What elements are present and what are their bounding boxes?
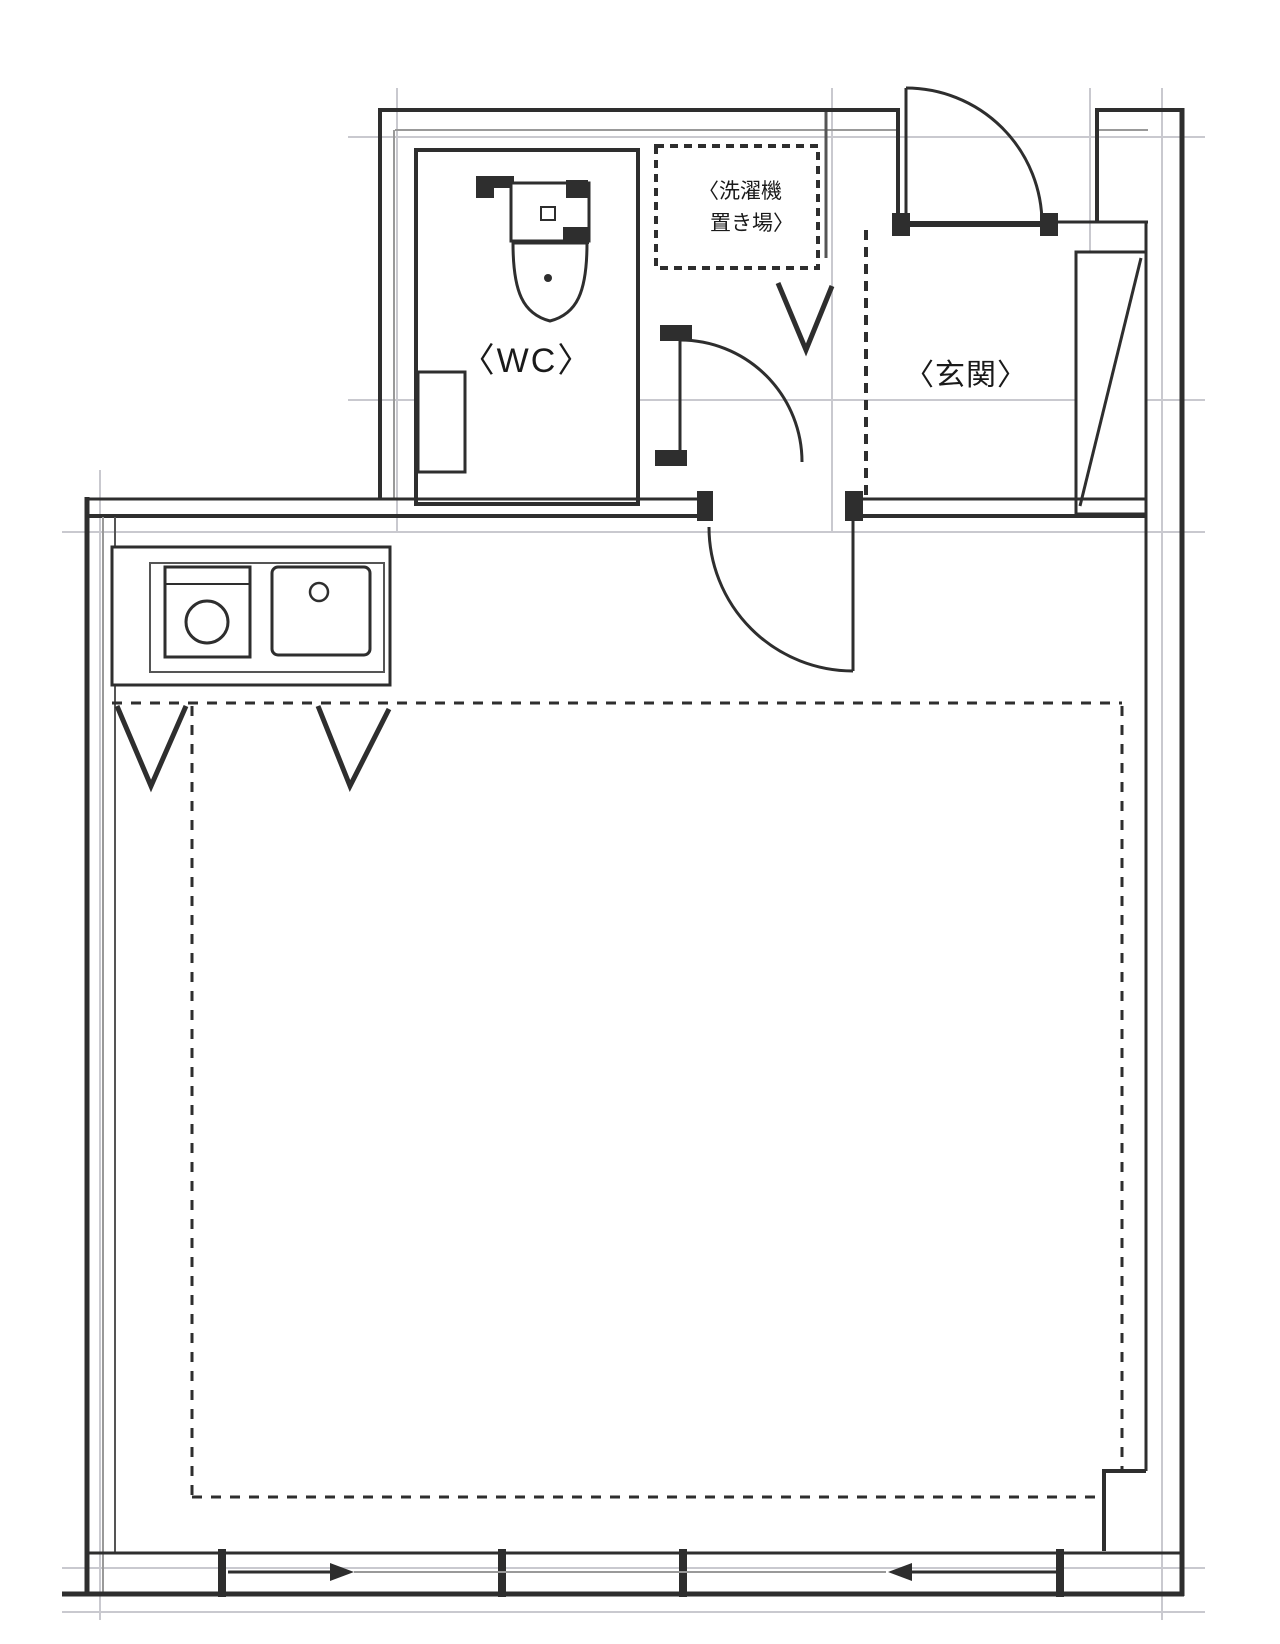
shoe-cabinet (1076, 252, 1146, 514)
washer-label-line1: 〈洗濯機 (698, 180, 782, 203)
kitchen-counter (112, 547, 390, 786)
slide-arrow-right (888, 1563, 1056, 1581)
genkan-room-label: 〈玄関〉 (904, 359, 1028, 392)
floor-plan-page: 〈WC〉 〈洗濯機 置き場〉 〈玄関〉 (0, 0, 1280, 1644)
wc-room-label: 〈WC〉 (461, 342, 594, 380)
entrance-area: 〈玄関〉 (866, 88, 1148, 514)
sliding-window (62, 1549, 1184, 1597)
kitchen-opening-mark-right (318, 706, 389, 786)
kitchen-sink-icon (272, 567, 370, 655)
room-dashed-outline (112, 703, 1122, 1497)
slide-arrow-left (228, 1563, 886, 1581)
floor-plan-drawing: 〈WC〉 〈洗濯機 置き場〉 〈玄関〉 (0, 0, 1280, 1644)
wc-room: 〈WC〉 (416, 150, 638, 504)
wc-shelf (418, 372, 465, 472)
stove-burner-icon (165, 567, 250, 657)
washing-machine-area: 〈洗濯機 置き場〉 (656, 112, 832, 350)
kitchen-opening-mark-left (117, 706, 186, 786)
wall-step (1104, 1471, 1146, 1551)
entrance-door-swing (892, 88, 1058, 236)
wc-door-swing (655, 325, 802, 466)
washer-label-line2: 置き場〉 (710, 212, 794, 235)
room-door-swing (709, 521, 853, 671)
washer-pan-mark (778, 283, 832, 350)
